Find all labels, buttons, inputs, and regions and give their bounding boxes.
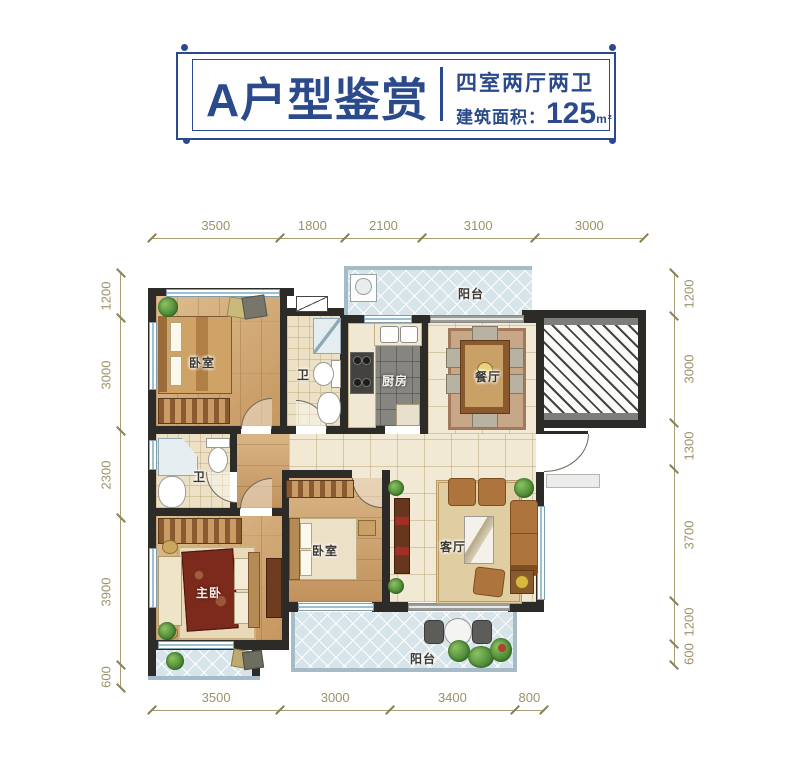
- dimension-label: 1800: [298, 218, 327, 233]
- dimension-label: 3400: [438, 690, 467, 705]
- sink-icon: [400, 326, 418, 343]
- bedroom-top-window: [149, 322, 157, 390]
- dimension-segment: 1200: [675, 273, 703, 316]
- dimension-segment: 800: [515, 680, 544, 710]
- kitchen-window: [364, 315, 412, 323]
- room-label-bath-top: 卫: [297, 366, 310, 383]
- ledge-wall: [148, 676, 260, 680]
- dining-chair-icon: [472, 412, 498, 428]
- nightstand-icon: [358, 520, 376, 536]
- flower-icon: [498, 644, 506, 652]
- sink-icon: [380, 326, 399, 343]
- tv-cabinet-icon: [394, 498, 410, 574]
- living-balcony-slider: [408, 603, 510, 611]
- patio-chair-icon: [424, 620, 444, 644]
- plant-icon: [158, 622, 176, 640]
- entry-step: [546, 474, 600, 488]
- dimension-label: 3000: [575, 218, 604, 233]
- washing-machine-drum: [355, 278, 372, 295]
- entry-door-arc: [544, 434, 589, 472]
- dimension-segment: 1200: [675, 601, 703, 644]
- dimension-segment: 3700: [675, 469, 703, 601]
- dimension-segment: 1800: [280, 208, 346, 238]
- plant-icon: [388, 480, 404, 496]
- wardrobe-icon: [158, 398, 230, 424]
- bath-mid-window: [149, 440, 157, 470]
- plant-icon: [166, 652, 184, 670]
- room-label-dining: 餐厅: [475, 368, 501, 385]
- armchair-icon: [478, 478, 506, 506]
- balcony-wall: [344, 266, 348, 316]
- room-label-bath-mid: 卫: [193, 468, 206, 485]
- fridge-icon: [396, 404, 420, 426]
- dimension-label: 2100: [369, 218, 398, 233]
- wall: [271, 426, 296, 434]
- dimension-segment: 600: [675, 644, 703, 665]
- dimension-label: 2300: [99, 460, 114, 489]
- area-label: 建筑面积：: [456, 108, 546, 127]
- dimension-segment: 3400: [390, 680, 515, 710]
- corner-pin-icon: [181, 44, 188, 51]
- balcony-wall: [291, 668, 517, 672]
- balcony-wall: [513, 612, 517, 672]
- toilet-icon: [313, 362, 334, 386]
- dimension-strip-right: 12003000130037001200600: [674, 273, 703, 665]
- area-text: 建筑面积：125m²: [456, 97, 613, 131]
- bed-headboard: [248, 552, 260, 628]
- stove-burner: [362, 378, 371, 387]
- dimension-label: 600: [682, 643, 697, 665]
- dimension-label: 3900: [99, 577, 114, 606]
- dimension-segment: 3000: [675, 316, 703, 423]
- plant-icon: [158, 297, 178, 317]
- toilet-icon: [208, 447, 228, 473]
- plant-icon: [448, 640, 470, 662]
- wall: [372, 602, 408, 612]
- wardrobe-icon: [286, 480, 354, 498]
- dimension-strip-bottom: 350030003400800: [152, 680, 544, 711]
- dining-balcony-slider: [430, 315, 524, 323]
- dimension-segment: 3500: [152, 680, 280, 710]
- dimension-label: 3700: [682, 520, 697, 549]
- bowl-icon: [515, 575, 529, 589]
- floorplan-page: A户型鉴赏 四室两厅两卫 建筑面积：125m² 3500180021003100…: [0, 0, 800, 769]
- dimension-segment: 3000: [280, 680, 390, 710]
- dimension-strip-left: 1200300023003900600: [92, 273, 121, 688]
- hatch-inner-trim: [544, 318, 638, 325]
- plant-icon: [388, 578, 404, 594]
- wall: [280, 296, 287, 434]
- stove-burner: [362, 356, 371, 365]
- area-value: 125: [546, 97, 596, 130]
- stove-burner: [353, 378, 362, 387]
- area-unit: m²: [596, 112, 613, 126]
- room-label-kitchen: 厨房: [382, 372, 408, 389]
- wall: [148, 508, 240, 516]
- void-hatched-area: [544, 318, 638, 420]
- plan-title: A户型鉴赏: [206, 64, 428, 130]
- dimension-label: 800: [518, 690, 540, 705]
- room-label-bedroom-bottom: 卧室: [312, 542, 338, 559]
- nightstand-icon: [162, 540, 178, 554]
- dining-chair-icon: [508, 348, 524, 368]
- dimension-segment: 3900: [92, 518, 120, 665]
- room-label-master: 主卧: [196, 584, 222, 601]
- dimension-label: 1200: [682, 608, 697, 637]
- dimension-label: 3100: [464, 218, 493, 233]
- dimension-label: 3500: [202, 690, 231, 705]
- dimension-label: 1200: [682, 280, 697, 309]
- dimension-label: 1300: [682, 431, 697, 460]
- title-divider: [440, 67, 443, 121]
- dimension-label: 1200: [99, 281, 114, 310]
- wall: [536, 310, 646, 318]
- dimension-label: 600: [99, 666, 114, 688]
- high-window-icon: [296, 296, 328, 312]
- dimension-segment: 3500: [152, 208, 280, 238]
- balcony-wall: [291, 612, 295, 672]
- wall: [230, 434, 237, 472]
- room-label-living: 客厅: [440, 538, 466, 555]
- living-window: [537, 506, 545, 600]
- dresser-icon: [266, 558, 282, 618]
- plant-icon: [514, 478, 534, 498]
- bathtub-icon: [317, 392, 341, 424]
- pillow-icon: [300, 550, 312, 576]
- pillow-icon: [300, 523, 312, 549]
- stove-burner: [353, 356, 362, 365]
- dimension-segment: 3000: [535, 208, 644, 238]
- dimension-label: 3000: [99, 360, 114, 389]
- dimension-label: 3000: [682, 355, 697, 384]
- dimension-segment: 3000: [92, 318, 120, 431]
- shower-icon: [313, 318, 341, 354]
- wall: [148, 426, 241, 434]
- wall: [544, 420, 646, 428]
- patio-chair-icon: [472, 620, 492, 644]
- pillow-icon: [170, 356, 182, 386]
- ottoman-icon: [472, 566, 505, 597]
- wall: [340, 315, 348, 434]
- dimension-label: 3000: [321, 690, 350, 705]
- room-label-balcony-top: 阳台: [458, 285, 484, 302]
- decor-cushion-icon: [241, 294, 267, 319]
- wall: [638, 310, 646, 428]
- bed-headboard: [158, 316, 167, 392]
- dimension-segment: 2100: [345, 208, 422, 238]
- dimension-segment: 1200: [92, 273, 120, 318]
- wall: [282, 602, 298, 612]
- sofa-icon: [510, 500, 538, 576]
- dimension-label: 3500: [201, 218, 230, 233]
- dining-chair-icon: [508, 374, 524, 394]
- dimension-segment: 2300: [92, 431, 120, 518]
- coffee-table-icon: [464, 516, 494, 564]
- room-label-balcony-bottom: 阳台: [410, 650, 436, 667]
- unit-layout-text: 四室两厅两卫: [456, 67, 594, 97]
- decor-cushion-icon: [242, 650, 264, 671]
- room-label-bedroom-top: 卧室: [189, 354, 215, 371]
- armchair-icon: [448, 478, 476, 506]
- bathtub-icon: [158, 476, 186, 508]
- wall: [282, 470, 352, 478]
- hatch-inner-trim: [544, 413, 638, 420]
- corner-pin-icon: [609, 44, 616, 51]
- balcony-wall: [344, 266, 532, 270]
- dimension-segment: 3100: [422, 208, 535, 238]
- bedroom-bottom-window: [298, 603, 374, 611]
- dimension-tick: [116, 683, 126, 693]
- master-side-window: [149, 548, 157, 608]
- pillow-icon: [170, 322, 182, 352]
- dimension-strip-top: 35001800210031003000: [152, 208, 644, 239]
- chaise-icon: [158, 556, 182, 626]
- bed-headboard: [289, 518, 300, 580]
- wall: [536, 310, 544, 434]
- master-window: [158, 641, 234, 649]
- dimension-segment: 1300: [675, 423, 703, 469]
